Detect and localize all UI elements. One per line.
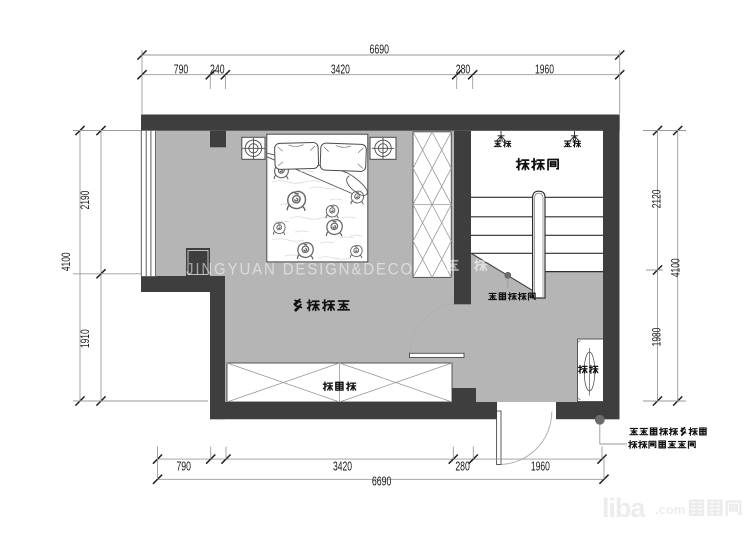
svg-text:2190: 2190 (78, 190, 92, 209)
svg-text:2120: 2120 (650, 189, 664, 208)
svg-text:790: 790 (174, 61, 189, 76)
svg-text:3420: 3420 (331, 61, 350, 76)
svg-text:1960: 1960 (535, 61, 554, 76)
svg-text:4100: 4100 (59, 252, 73, 271)
svg-text:1910: 1910 (78, 329, 92, 348)
svg-text:280: 280 (455, 458, 470, 473)
svg-text:790: 790 (176, 458, 191, 473)
svg-text:liba: liba (602, 493, 646, 523)
svg-text:6690: 6690 (369, 41, 389, 56)
svg-text:280: 280 (456, 61, 471, 76)
svg-text:6690: 6690 (372, 473, 392, 488)
svg-text:1960: 1960 (531, 458, 550, 473)
svg-text:JINGYUAN DESIGN&DECO: JINGYUAN DESIGN&DECO (186, 261, 414, 279)
svg-text:240: 240 (210, 61, 225, 76)
svg-text:3420: 3420 (333, 458, 352, 473)
svg-text:1980: 1980 (650, 327, 664, 346)
svg-text:.com: .com (655, 502, 685, 517)
svg-text:4100: 4100 (668, 258, 682, 277)
